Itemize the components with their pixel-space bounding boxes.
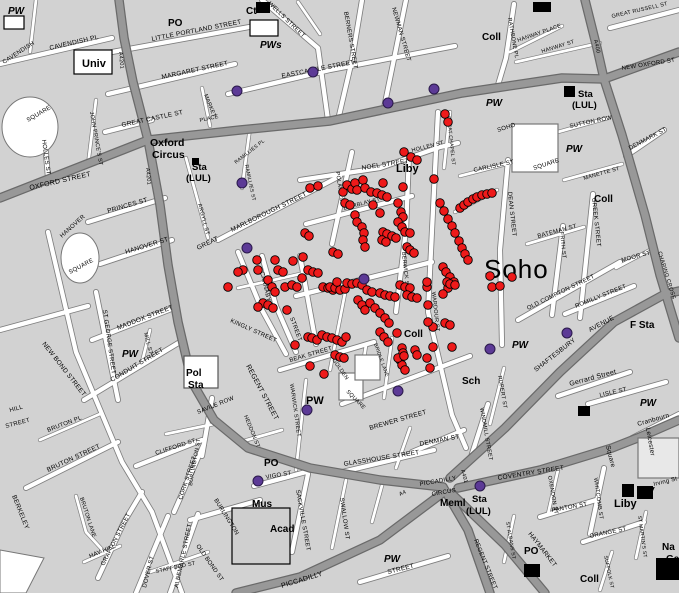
building: [533, 2, 551, 12]
death-marker: [446, 321, 455, 330]
death-marker: [379, 179, 388, 188]
death-marker: [488, 189, 497, 198]
pump-marker: [475, 481, 485, 491]
amenity-label: PW: [384, 554, 402, 565]
death-marker: [293, 283, 302, 292]
pump-marker: [242, 243, 252, 253]
amenity-label: PO: [524, 546, 539, 557]
amenity-label: PW: [8, 6, 26, 17]
death-marker: [429, 343, 438, 352]
building: [578, 406, 590, 416]
white-block-brewer: [355, 355, 380, 380]
pump-marker: [237, 178, 247, 188]
pump-marker: [253, 476, 263, 486]
death-marker: [486, 272, 495, 281]
amenity-label: F Sta: [630, 320, 655, 331]
death-marker: [423, 354, 432, 363]
pump-marker: [562, 328, 572, 338]
amenity-label: Ct: [246, 6, 257, 17]
map-canvas: CAVENDISH PLLITTLE PORTLAND STREETMARGAR…: [0, 0, 679, 593]
death-marker: [289, 257, 298, 266]
death-marker: [394, 199, 403, 208]
amenity-label: Coll: [580, 574, 599, 585]
death-marker: [392, 234, 401, 243]
amenity-label: PW: [122, 349, 140, 360]
death-marker: [406, 229, 415, 238]
death-marker: [306, 184, 315, 193]
death-marker: [451, 229, 460, 238]
death-marker: [451, 281, 460, 290]
amenity-label: Oxford: [150, 137, 184, 149]
death-marker: [399, 183, 408, 192]
death-marker: [269, 304, 278, 313]
hanover-square: [61, 233, 99, 283]
pw-block-nw: [4, 16, 24, 29]
pump-marker: [485, 344, 495, 354]
death-marker: [383, 193, 392, 202]
death-marker: [426, 364, 435, 373]
amenity-label: Coll: [482, 32, 501, 43]
region-label-soho: Soho: [484, 254, 549, 284]
amenity-label: Univ: [82, 58, 107, 70]
amenity-label: Sch: [462, 376, 480, 387]
amenity-label: PW: [512, 340, 530, 351]
amenity-label: (LUL): [186, 173, 211, 184]
amenity-label: PW: [486, 98, 504, 109]
amenity-label: Sta: [578, 89, 594, 100]
amenity-label: Mus: [252, 499, 272, 510]
death-marker: [291, 341, 300, 350]
death-marker: [401, 366, 410, 375]
amenity-label: Coll: [404, 329, 423, 340]
amenity-label: Pol: [186, 368, 202, 379]
death-marker: [424, 301, 433, 310]
pump-marker: [383, 98, 393, 108]
death-marker: [368, 288, 377, 297]
amenity-label: Liby: [614, 498, 637, 510]
death-marker: [224, 283, 233, 292]
amenity-label: Na: [662, 542, 675, 553]
death-marker: [430, 175, 439, 184]
death-marker: [253, 256, 262, 265]
death-marker: [361, 243, 370, 252]
death-marker: [448, 343, 457, 352]
death-marker: [320, 370, 329, 379]
death-marker: [314, 182, 323, 191]
amenity-label: (LUL): [572, 100, 597, 111]
death-marker: [283, 306, 292, 315]
death-marker: [436, 199, 445, 208]
amenity-label: Sta: [192, 162, 208, 173]
death-marker: [384, 338, 393, 347]
death-marker: [254, 266, 263, 275]
death-marker: [440, 207, 449, 216]
academy-block: [232, 508, 290, 564]
amenity-label: Acad: [270, 524, 294, 535]
amenity-label: Sta: [472, 494, 488, 505]
soho-cholera-map: CAVENDISH PLLITTLE PORTLAND STREETMARGAR…: [0, 0, 679, 593]
death-marker: [391, 293, 400, 302]
amenity-label: Coll: [594, 194, 613, 205]
building: [564, 86, 575, 97]
death-marker: [334, 250, 343, 259]
pump-marker: [393, 386, 403, 396]
amenity-label: Ga: [666, 554, 679, 565]
death-marker: [298, 274, 307, 283]
death-marker: [441, 110, 450, 119]
amenity-label: PW: [638, 486, 656, 497]
death-marker: [376, 209, 385, 218]
death-marker: [413, 351, 422, 360]
eastcastle-block: [250, 20, 278, 36]
death-marker: [439, 290, 448, 299]
death-marker: [271, 288, 280, 297]
death-marker: [488, 283, 497, 292]
amenity-label: PW: [640, 398, 658, 409]
building: [524, 564, 540, 577]
amenity-label: Circus: [152, 149, 185, 161]
death-marker: [271, 256, 280, 265]
death-marker: [254, 303, 263, 312]
death-marker: [424, 318, 433, 327]
death-marker: [496, 282, 505, 291]
leicester-square: [638, 438, 679, 478]
death-marker: [382, 238, 391, 247]
pump-marker: [232, 86, 242, 96]
death-marker: [314, 269, 323, 278]
death-marker: [400, 352, 409, 361]
death-marker: [306, 362, 315, 371]
pump-marker: [308, 67, 318, 77]
amenity-label: Meml: [440, 498, 466, 509]
death-marker: [333, 278, 342, 287]
death-marker: [346, 201, 355, 210]
amenity-label: PW: [566, 144, 584, 155]
death-marker: [279, 268, 288, 277]
amenity-label: Liby: [396, 163, 419, 175]
region-labels: Soho: [484, 254, 549, 284]
death-marker: [305, 232, 314, 241]
death-marker: [444, 118, 453, 127]
death-marker: [385, 319, 394, 328]
amenity-label: PO: [168, 18, 183, 29]
death-marker: [508, 273, 517, 282]
death-marker: [423, 278, 432, 287]
death-marker: [340, 354, 349, 363]
pump-marker: [302, 405, 312, 415]
death-marker: [299, 253, 308, 262]
death-marker: [234, 268, 243, 277]
pump-marker: [359, 274, 369, 284]
death-marker: [359, 176, 368, 185]
pump-marker: [429, 84, 439, 94]
death-marker: [353, 186, 362, 195]
building: [622, 484, 634, 497]
amenity-label: PO: [264, 458, 279, 469]
death-marker: [410, 249, 419, 258]
death-marker: [342, 333, 351, 342]
death-marker: [413, 156, 422, 165]
amenity-label: PWs: [260, 40, 282, 51]
death-marker: [393, 329, 402, 338]
amenity-label: Sta: [188, 380, 204, 391]
amenity-label: (LUL): [466, 506, 491, 517]
death-marker: [464, 256, 473, 265]
death-marker: [413, 294, 422, 303]
death-marker: [369, 201, 378, 210]
